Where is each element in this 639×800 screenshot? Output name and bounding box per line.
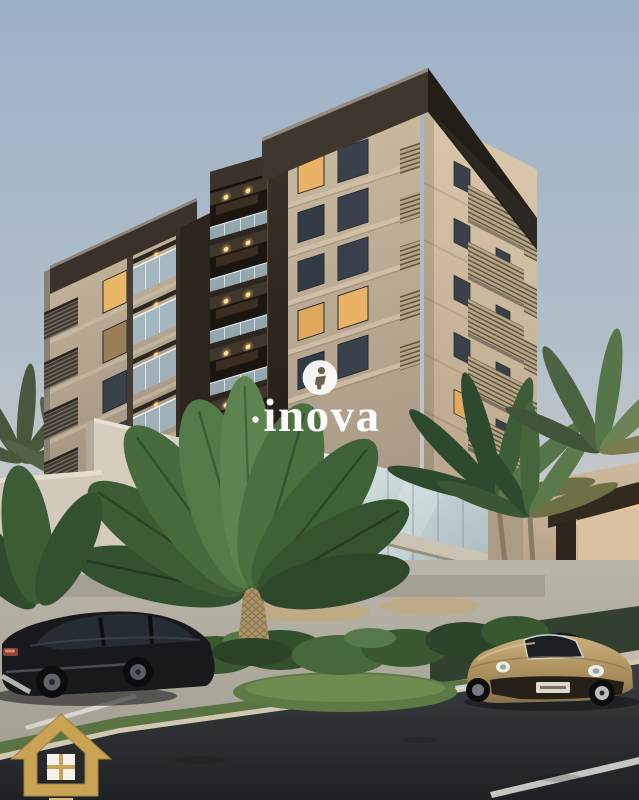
render-canvas: inova [0, 0, 639, 800]
architectural-render: inova [0, 0, 639, 800]
brand-wordmark: inova [263, 390, 380, 442]
brand-leading-dot [252, 416, 258, 422]
